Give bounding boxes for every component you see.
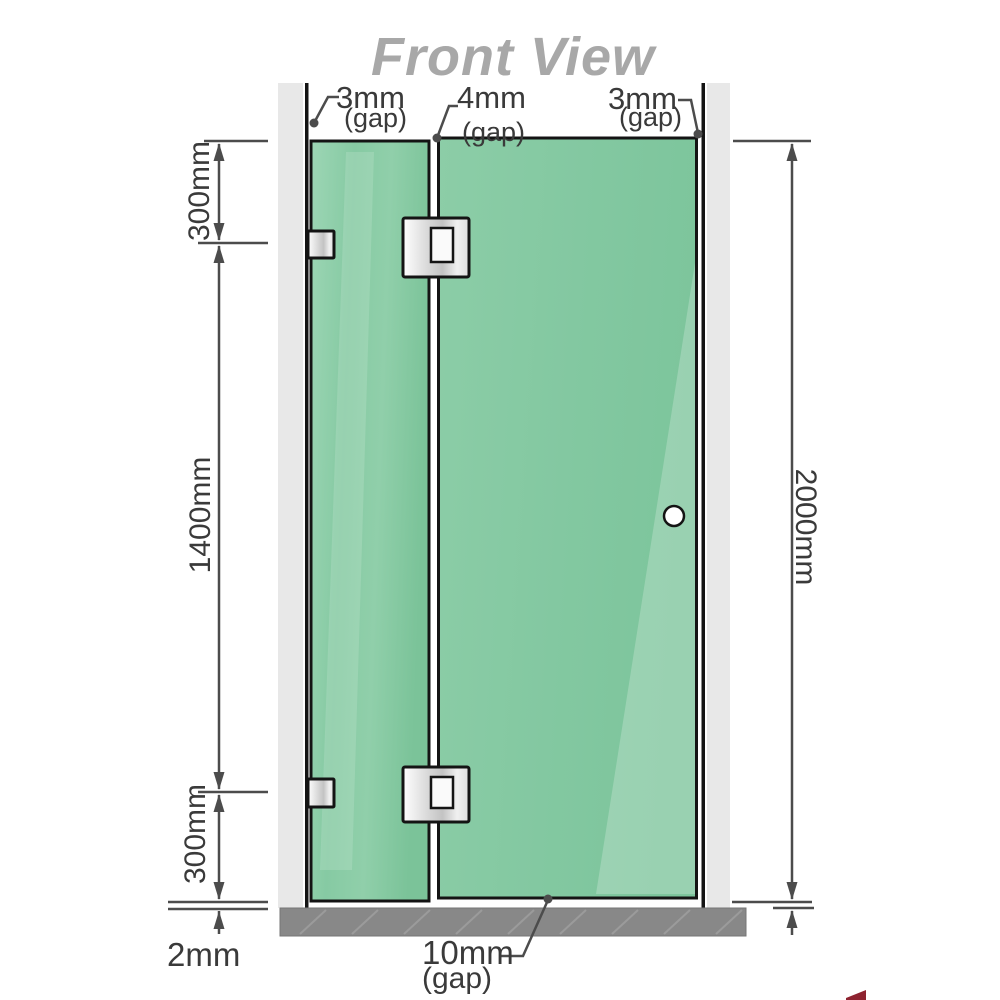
door-handle — [664, 506, 684, 526]
floor-gap-bottom-unit: (gap) — [422, 964, 492, 994]
wall-bracket-top — [308, 231, 334, 258]
segment-label-middle: 1400mm — [185, 450, 217, 580]
segment-label-top: 300mm — [184, 136, 216, 246]
floor-gap-left-label: 2mm — [167, 938, 240, 971]
shower-floor — [280, 908, 746, 936]
gap-label-middle-unit: (gap) — [462, 119, 525, 146]
gap-label-right-unit: (gap) — [619, 104, 682, 131]
front-view-diagram: Front View — [0, 0, 1000, 1000]
segment-label-bottom: 300mm — [180, 779, 212, 889]
hinge-bottom-notch — [431, 777, 453, 808]
watermark-artifact — [846, 990, 866, 1000]
drawing-svg — [0, 0, 1000, 1000]
total-height-label: 2000mm — [789, 457, 821, 597]
right-wall-channel — [707, 83, 730, 908]
hinge-top-notch — [431, 228, 453, 262]
wall-bracket-bottom — [308, 779, 334, 807]
hinge-bottom — [403, 767, 469, 822]
leader-gap-left — [310, 97, 340, 128]
right-wall-inner-line — [702, 83, 706, 908]
left-wall-channel — [278, 83, 303, 908]
gap-label-middle-value: 4mm — [457, 82, 526, 113]
gap-label-left-unit: (gap) — [344, 105, 407, 132]
hinge-top — [403, 218, 469, 277]
